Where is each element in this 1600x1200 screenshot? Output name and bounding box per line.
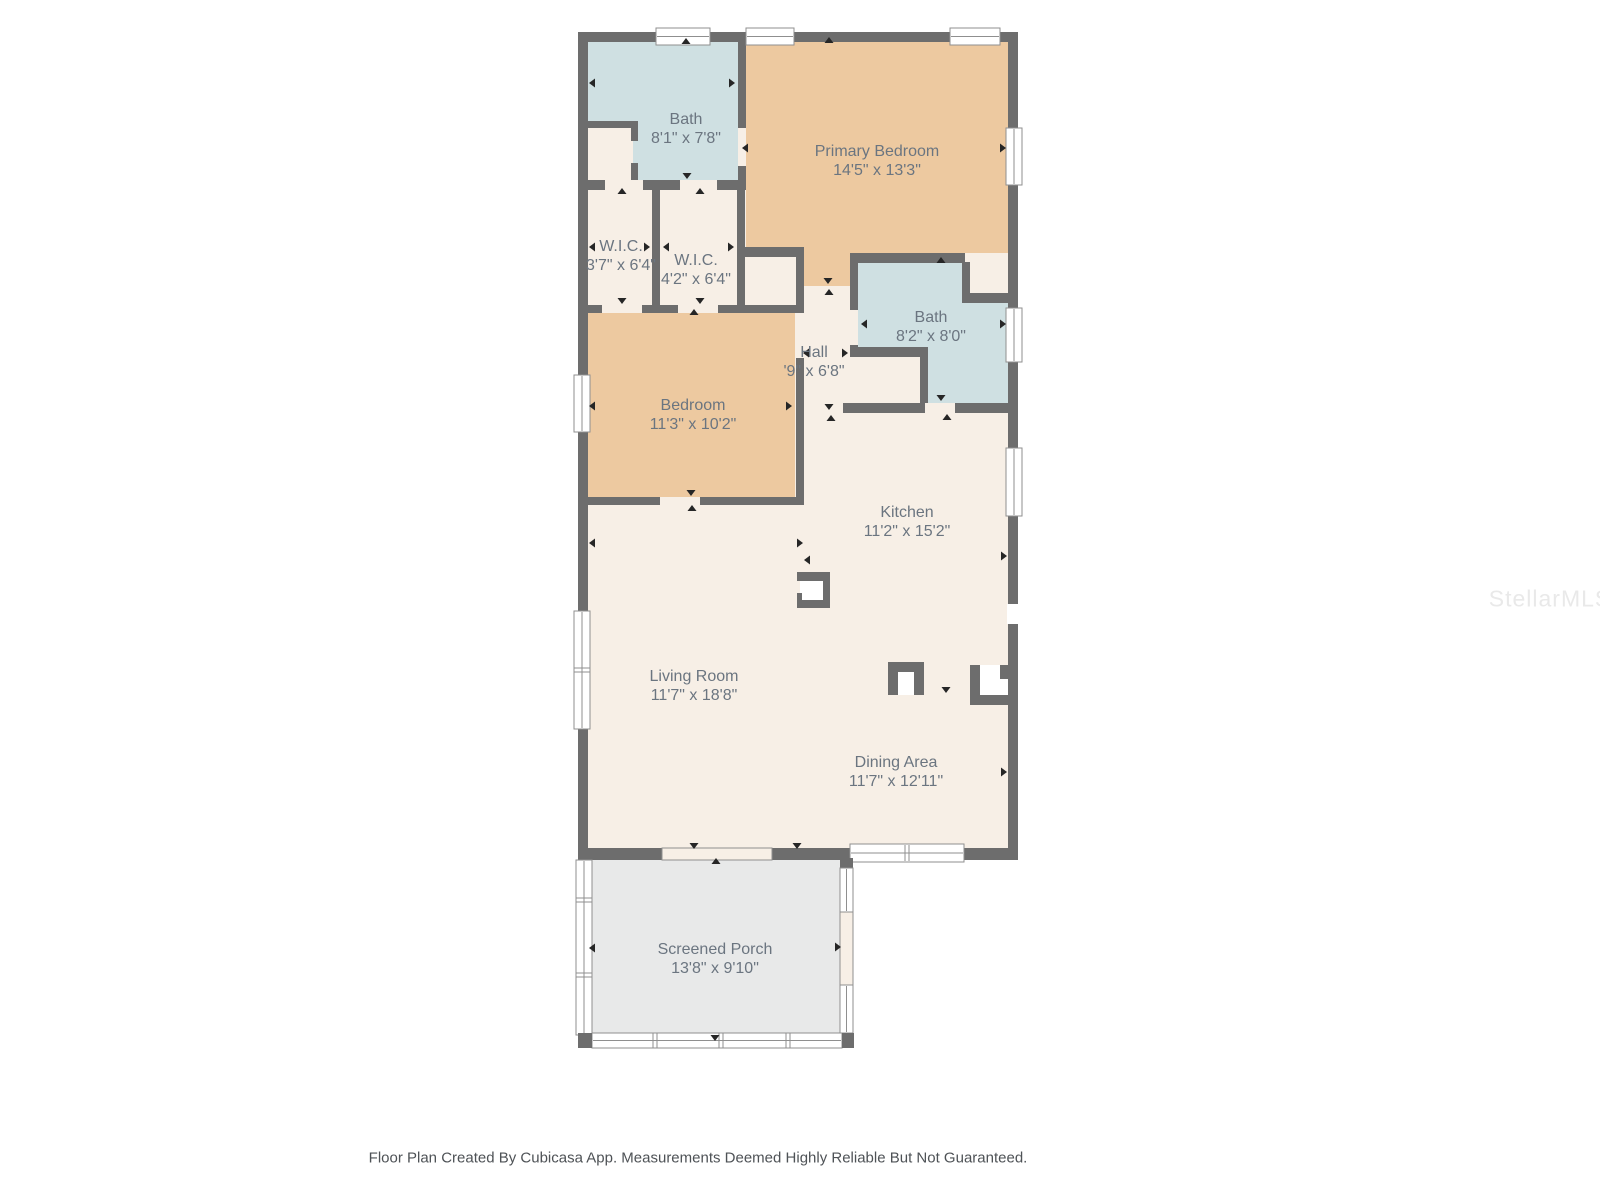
room-name: W.I.C. (586, 237, 656, 256)
room-label-wic-2: W.I.C. 4'2" x 6'4" (661, 251, 731, 289)
room-dims: 4'2" x 6'4" (661, 270, 731, 289)
room-dims: 14'5" x 13'3" (815, 161, 939, 180)
room-label-primary-bedroom: Primary Bedroom 14'5" x 13'3" (815, 142, 939, 180)
room-name: Bath (651, 110, 721, 129)
room-label-bedroom: Bedroom 11'3" x 10'2" (650, 396, 737, 434)
room-name: Bath (896, 308, 966, 327)
stellar-mls-watermark: StellarMLS (1489, 586, 1600, 613)
room-name: Screened Porch (658, 940, 773, 959)
porch-door-opening (840, 912, 853, 985)
room-dims: 11'2" x 15'2" (864, 522, 951, 541)
room-dims: 8'2" x 8'0" (896, 327, 966, 346)
room-label-living-room: Living Room 11'7" x 18'8" (650, 667, 739, 705)
room-name: Hall (783, 343, 844, 362)
room-label-wic-1: W.I.C. 3'7" x 6'4" (586, 237, 656, 275)
room-dims: 3'7" x 6'4" (586, 256, 656, 275)
room-name: Bedroom (650, 396, 737, 415)
room-dims: 11'7" x 18'8" (650, 686, 739, 705)
room-label-bath-1: Bath 8'1" x 7'8" (651, 110, 721, 148)
room-dims: 8'1" x 7'8" (651, 129, 721, 148)
room-dims: 13'8" x 9'10" (658, 959, 773, 978)
room-name: Dining Area (849, 753, 943, 772)
room-dims: 11'3" x 10'2" (650, 415, 737, 434)
room-label-dining-area: Dining Area 11'7" x 12'11" (849, 753, 943, 791)
room-name: Living Room (650, 667, 739, 686)
room-dims: '9" x 6'8" (783, 362, 844, 381)
room-name: Kitchen (864, 503, 951, 522)
room-name: Primary Bedroom (815, 142, 939, 161)
floor-plan-page: Bath 8'1" x 7'8" Primary Bedroom 14'5" x… (0, 0, 1600, 1200)
room-dims: 11'7" x 12'11" (849, 772, 943, 791)
door-opening-right (1007, 604, 1019, 624)
room-label-bath-2: Bath 8'2" x 8'0" (896, 308, 966, 346)
sliding-door-opening (662, 848, 772, 860)
room-label-kitchen: Kitchen 11'2" x 15'2" (864, 503, 951, 541)
room-name: W.I.C. (661, 251, 731, 270)
footer-disclaimer: Floor Plan Created By Cubicasa App. Meas… (369, 1150, 1028, 1167)
room-label-hall: Hall '9" x 6'8" (783, 343, 844, 381)
room-label-screened-porch: Screened Porch 13'8" x 9'10" (658, 940, 773, 978)
floor-plan-drawing (0, 0, 1600, 1200)
